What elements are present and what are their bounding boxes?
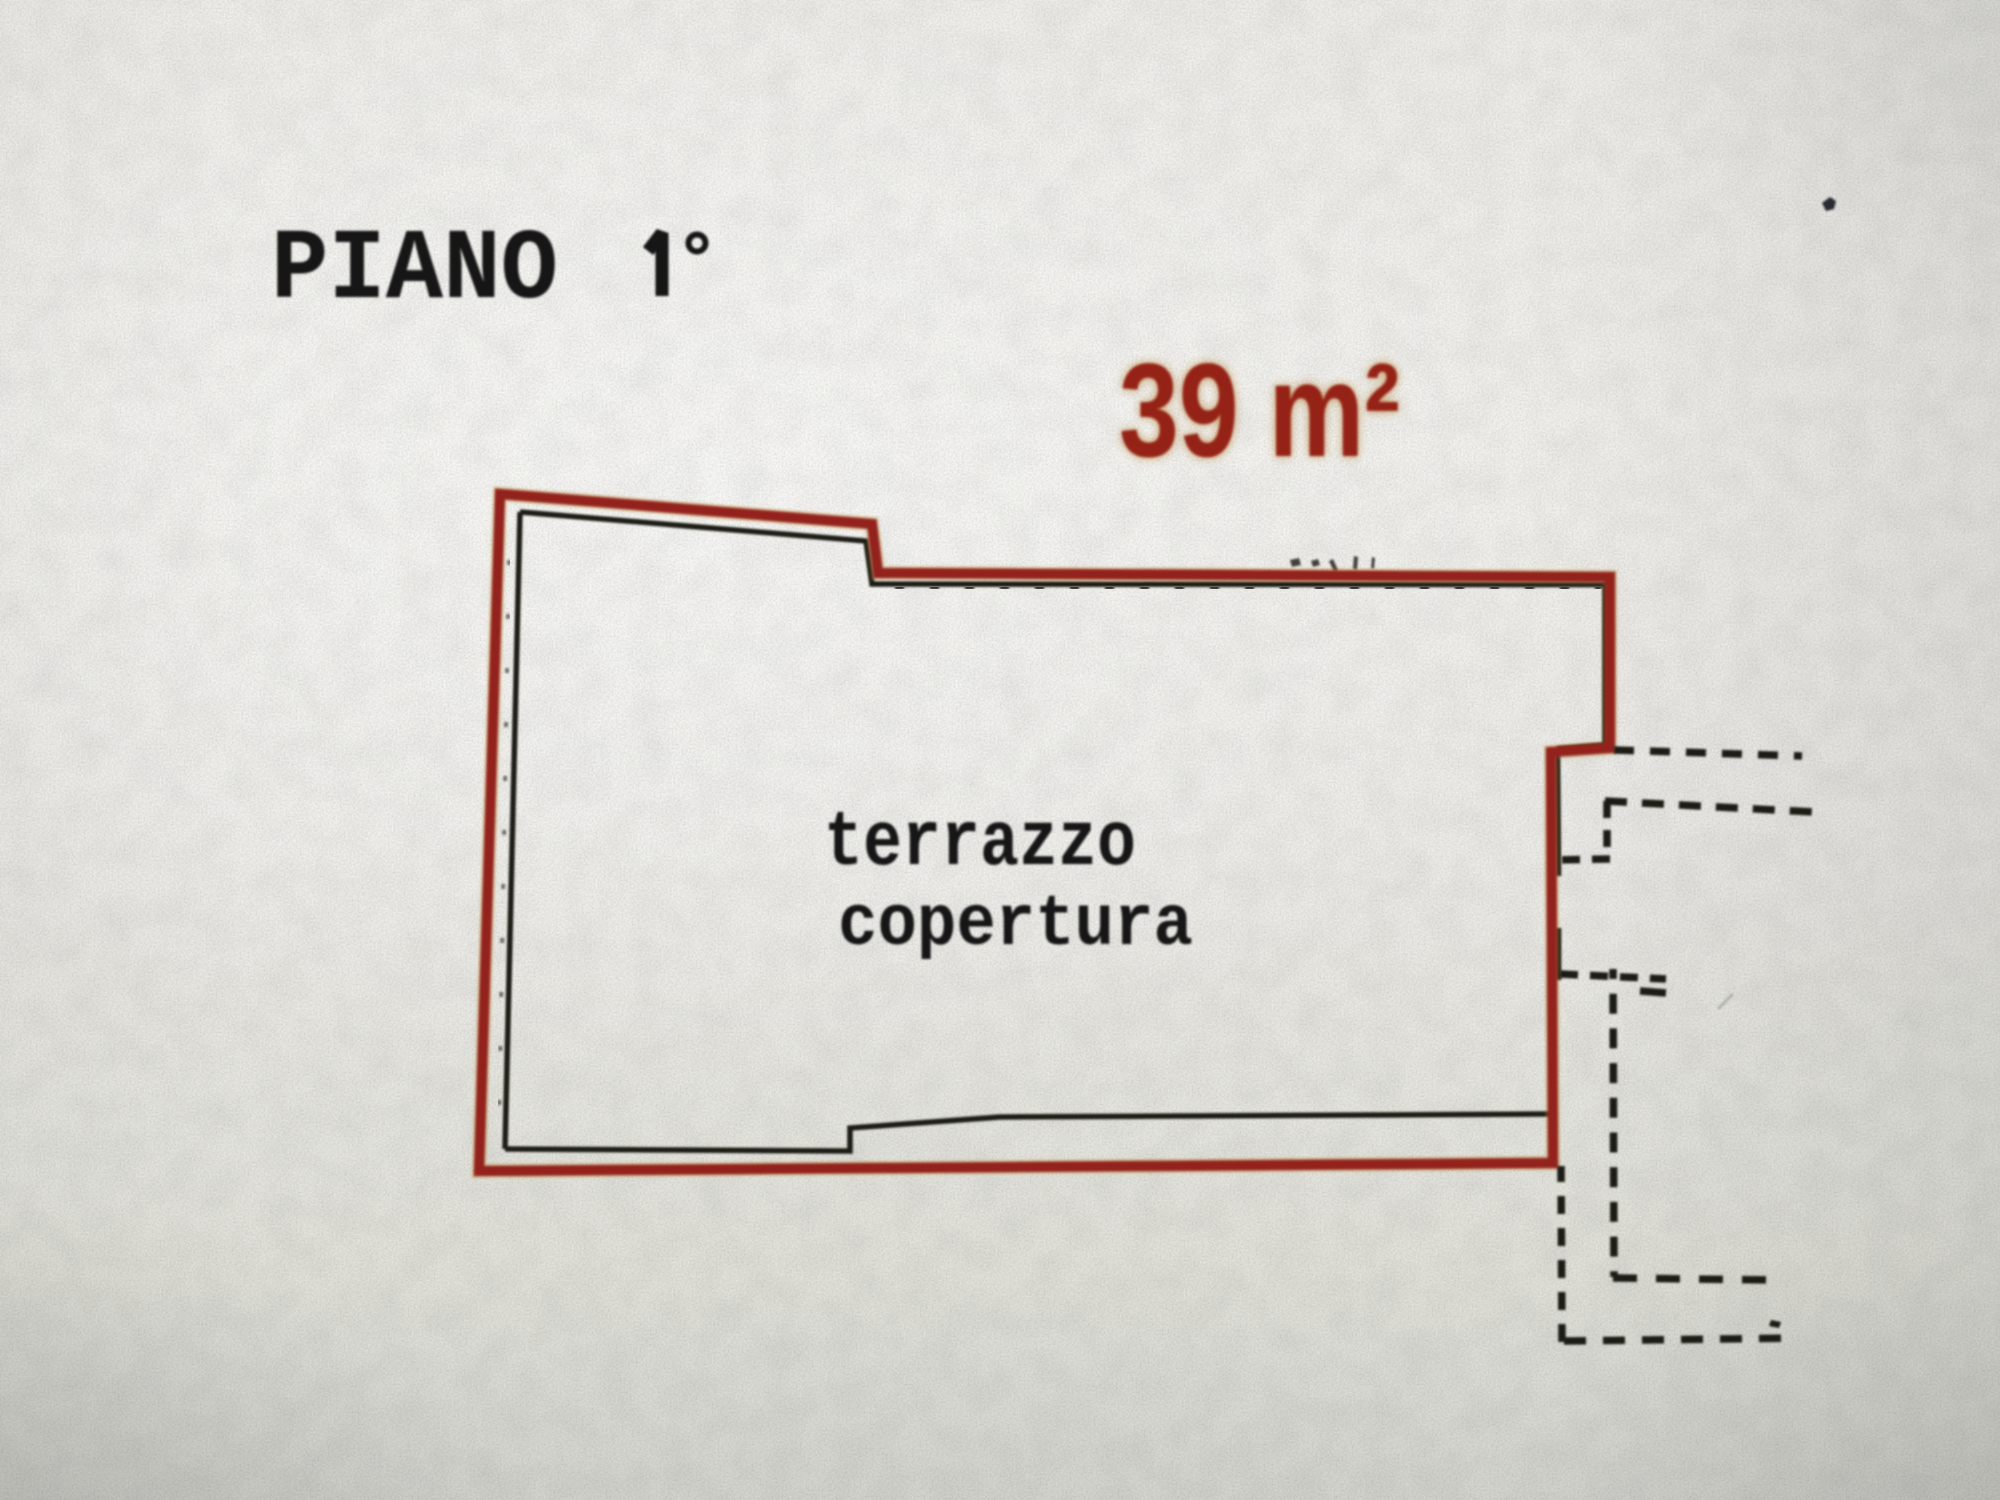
svg-text:39 m²: 39 m²	[1119, 337, 1400, 485]
svg-text:terrazzo: terrazzo	[824, 800, 1136, 888]
svg-text:copertura: copertura	[838, 884, 1193, 966]
svg-text:PIANO: PIANO	[271, 215, 558, 328]
